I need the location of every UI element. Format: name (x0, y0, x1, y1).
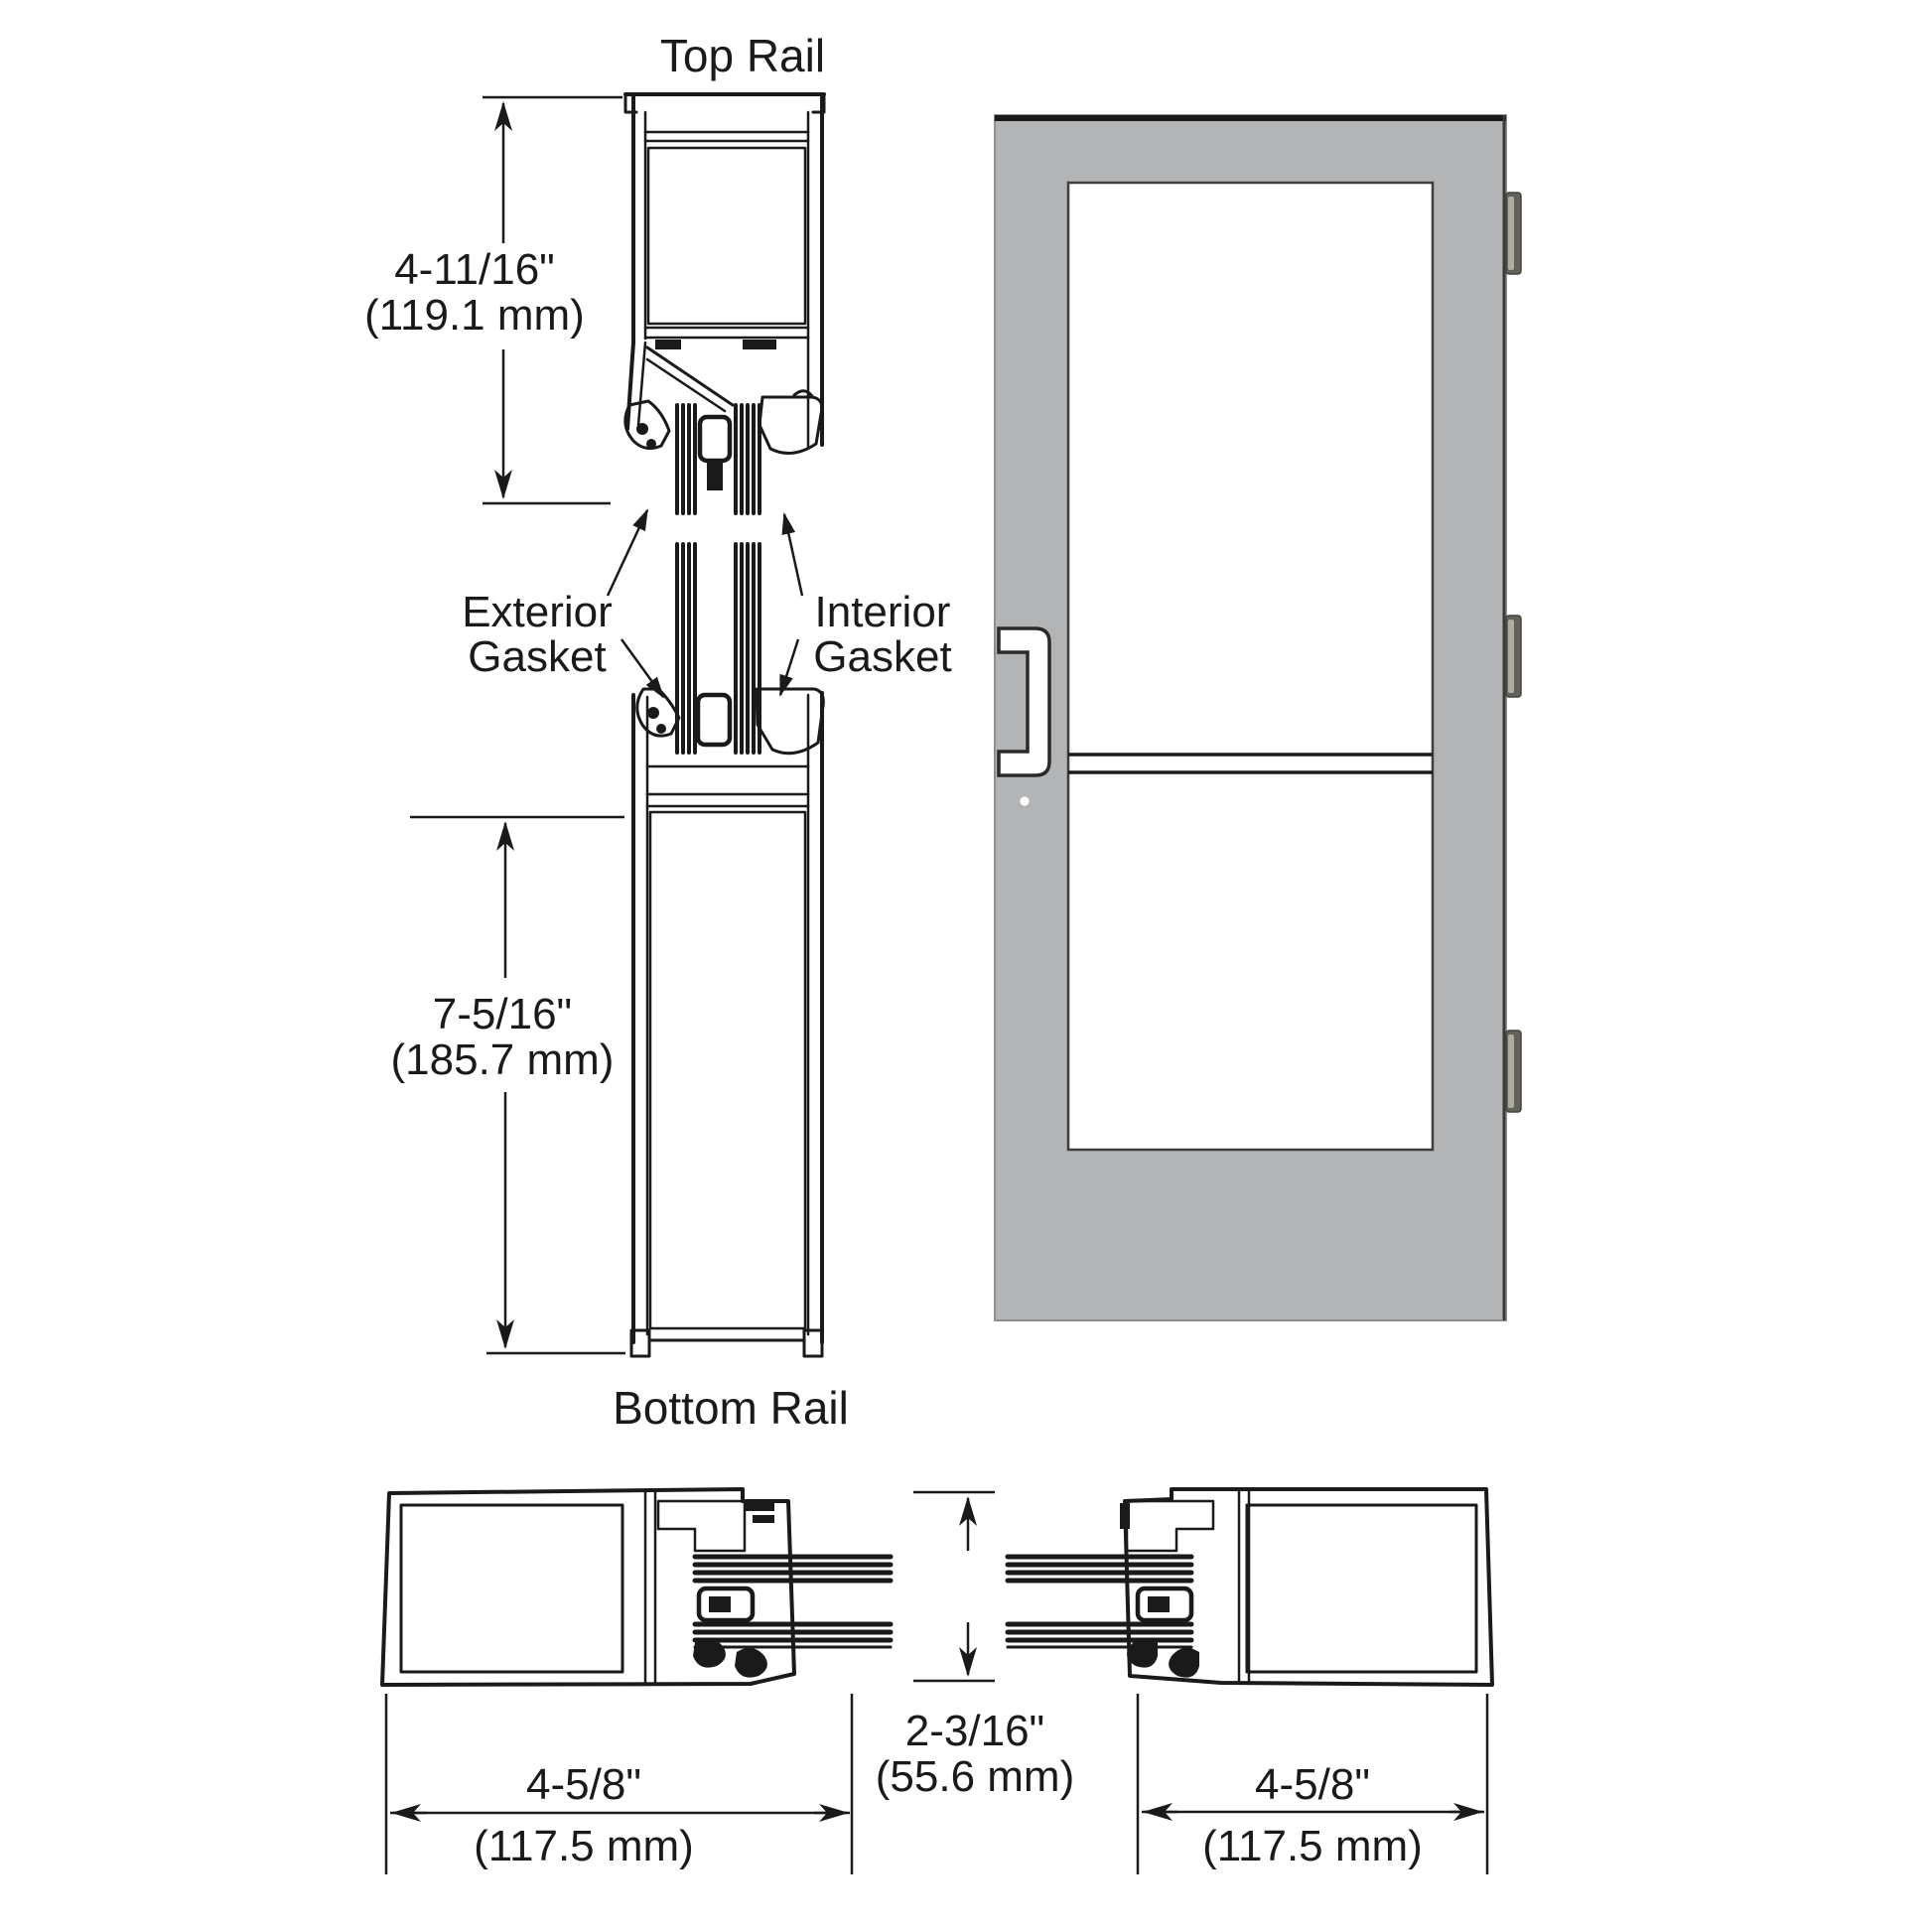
bottom-rail-label: Bottom Rail (613, 1382, 849, 1434)
dim-top-rail-metric: (119.1 mm) (364, 291, 585, 340)
top-rail-label: Top Rail (660, 30, 825, 81)
glazing-pocket (658, 1501, 745, 1551)
dim-hinge-stile-metric: (117.5 mm) (1202, 1822, 1423, 1870)
dimension-bottom-rail-height: 7-5/16" (185.7 mm) (391, 817, 625, 1353)
gasket-blob (1169, 1648, 1199, 1678)
hinge-stile-section-drawing (1008, 1489, 1492, 1685)
door-elevation (995, 115, 1521, 1320)
interior-gasket-callout: Interior Gasket (780, 514, 952, 695)
hinge-middle (1506, 616, 1521, 697)
dim-lock-stile-metric: (117.5 mm) (474, 1822, 694, 1870)
door-glass (1068, 183, 1433, 1150)
interior-gasket-lower (757, 689, 823, 754)
door-specification-diagram: 4-11/16" (119.1 mm) 7-5/16" (185.7 mm) T… (0, 0, 1932, 1932)
stile-infill-panel (1247, 1505, 1476, 1672)
glazing-clip (743, 340, 776, 349)
glass-unit-upper (677, 405, 759, 513)
hinge-bottom (1506, 1031, 1521, 1112)
dim-door-thickness-inches: 2-3/16" (905, 1707, 1044, 1755)
interior-gasket-label-line2: Gasket (813, 632, 951, 681)
cylinder-lock-indicator (1020, 796, 1031, 807)
exterior-gasket-label-line2: Gasket (468, 632, 606, 681)
glass-spacer (698, 695, 730, 745)
lock-stile-section-drawing (382, 1489, 891, 1685)
gasket-blob (735, 1648, 767, 1678)
bottom-rail-section-drawing (631, 689, 823, 1356)
dim-top-rail-inches: 4-11/16" (394, 245, 555, 294)
interior-gasket-upper (759, 397, 822, 453)
glazing-clip (655, 340, 681, 349)
dimension-top-rail-height: 4-11/16" (119.1 mm) (364, 97, 622, 503)
dim-bottom-rail-metric: (185.7 mm) (391, 1035, 615, 1084)
dimension-hinge-stile-width: 4-5/8" (117.5 mm) (1138, 1694, 1487, 1874)
dim-door-thickness-metric: (55.6 mm) (876, 1752, 1074, 1801)
glazing-pocket (1127, 1501, 1213, 1551)
glass-spacer (700, 417, 730, 461)
dimension-lock-stile-width: 4-5/8" (117.5 mm) (386, 1694, 852, 1874)
glass-unit-lower (677, 544, 759, 753)
interior-gasket-label-line1: Interior (815, 588, 951, 636)
dim-hinge-stile-inches: 4-5/8" (1255, 1760, 1370, 1809)
glass-unit-edge (1008, 1557, 1191, 1647)
exterior-gasket-callout: Exterior Gasket (462, 510, 663, 697)
exterior-gasket-label-line1: Exterior (462, 588, 613, 636)
stile-infill-panel (401, 1505, 622, 1672)
hinge-top (1506, 193, 1521, 274)
dim-lock-stile-inches: 4-5/8" (526, 1760, 641, 1809)
dim-bottom-rail-inches: 7-5/16" (433, 990, 572, 1038)
